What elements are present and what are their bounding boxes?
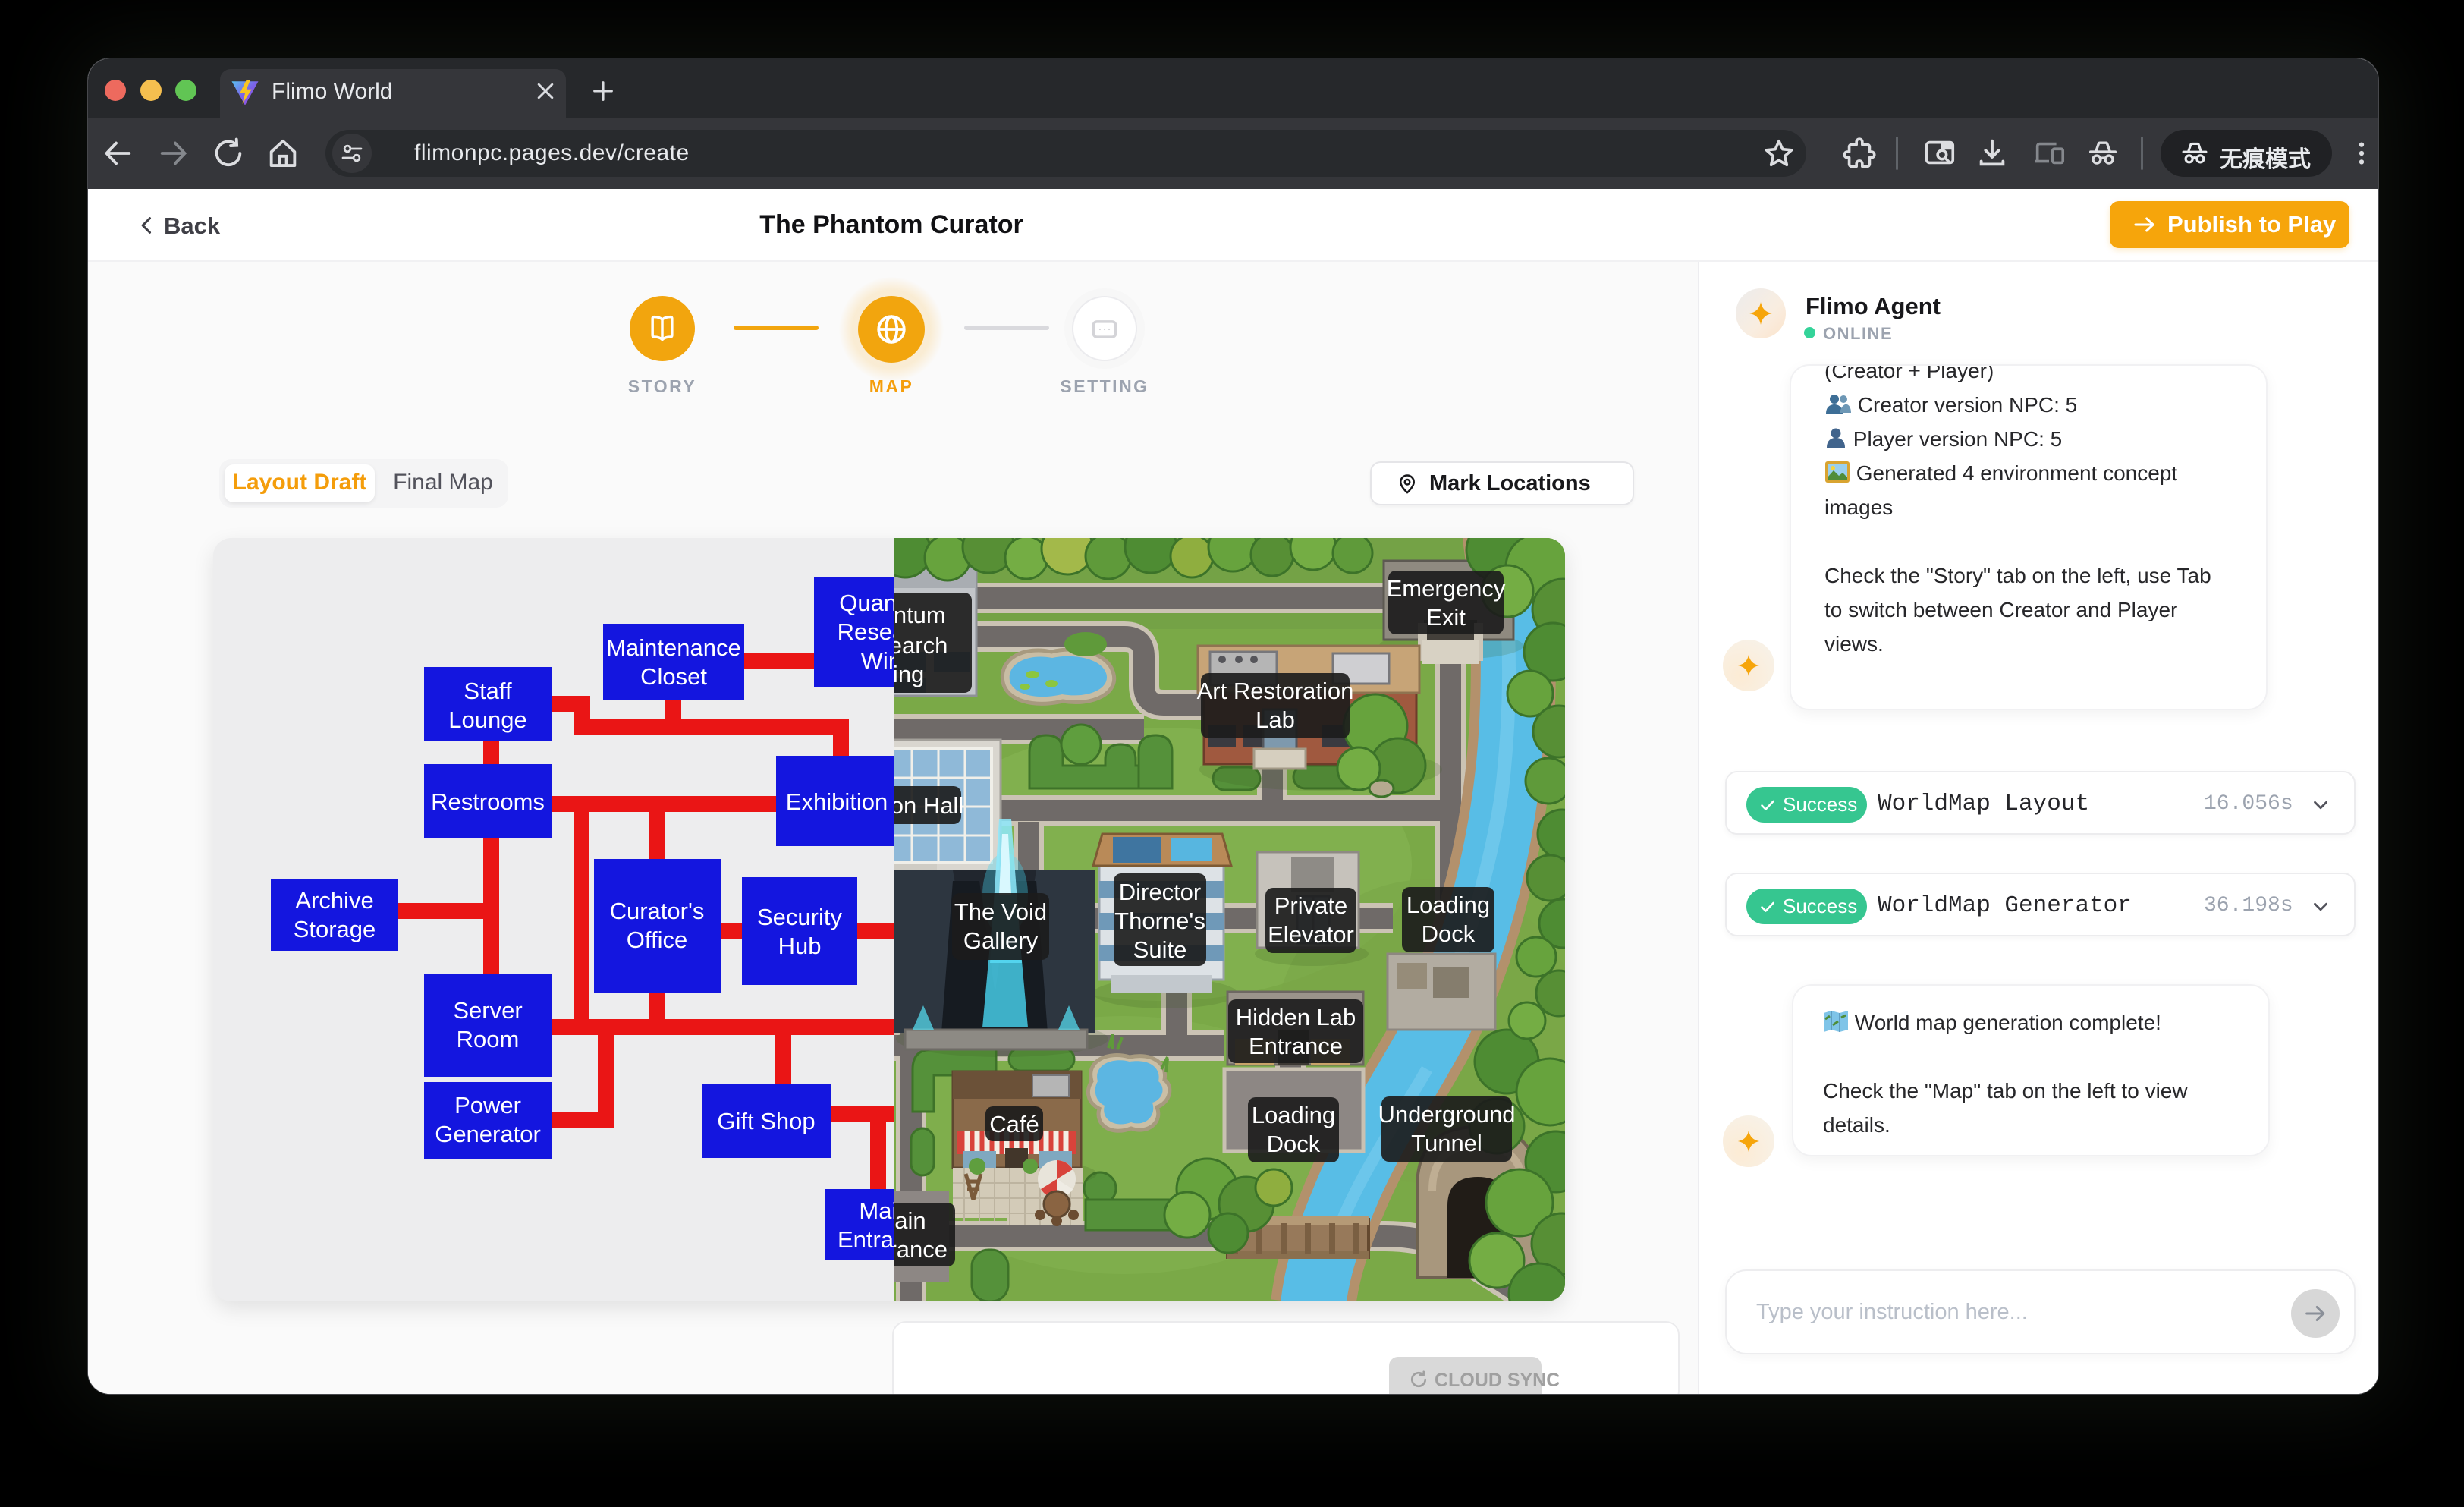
svg-text:Dock: Dock: [1422, 920, 1476, 947]
svg-text:Hidden Lab: Hidden Lab: [1236, 1004, 1356, 1030]
svg-text:Power: Power: [454, 1092, 521, 1118]
svg-text:Room: Room: [457, 1026, 520, 1052]
svg-text:Gift Shop: Gift Shop: [717, 1108, 815, 1134]
svg-text:Gallery: Gallery: [963, 927, 1039, 954]
svg-text:Emergency: Emergency: [1387, 575, 1506, 602]
svg-text:Loading: Loading: [1406, 892, 1490, 918]
svg-text:Office: Office: [627, 927, 687, 953]
svg-text:Tunnel: Tunnel: [1411, 1130, 1482, 1156]
svg-text:Private: Private: [1274, 892, 1347, 919]
svg-text:Suite: Suite: [1133, 936, 1187, 963]
svg-text:Café: Café: [989, 1111, 1039, 1137]
svg-text:Maintenance: Maintenance: [606, 634, 741, 661]
svg-text:Loading: Loading: [1252, 1102, 1335, 1128]
svg-text:Thorne's: Thorne's: [1114, 908, 1205, 934]
svg-text:The Void: The Void: [954, 898, 1047, 925]
svg-text:Staff: Staff: [464, 678, 512, 704]
svg-text:Archive: Archive: [295, 887, 373, 914]
svg-text:Lounge: Lounge: [448, 706, 526, 733]
svg-text:Elevator: Elevator: [1268, 921, 1354, 948]
svg-text:Art Restoration: Art Restoration: [1197, 678, 1354, 704]
svg-text:Generator: Generator: [435, 1121, 541, 1147]
svg-text:Closet: Closet: [640, 663, 707, 690]
svg-text:Curator's: Curator's: [610, 898, 705, 924]
svg-text:Underground: Underground: [1378, 1101, 1516, 1128]
svg-text:Exit: Exit: [1426, 604, 1466, 631]
svg-text:Security: Security: [757, 904, 842, 930]
svg-text:Hub: Hub: [778, 933, 822, 959]
svg-text:Storage: Storage: [294, 916, 376, 942]
svg-text:Restrooms: Restrooms: [431, 788, 545, 815]
svg-text:Director: Director: [1119, 879, 1202, 905]
svg-text:Dock: Dock: [1267, 1131, 1321, 1157]
svg-text:Entrance: Entrance: [1249, 1033, 1343, 1059]
svg-text:Server: Server: [453, 997, 522, 1024]
svg-text:Lab: Lab: [1256, 706, 1295, 733]
